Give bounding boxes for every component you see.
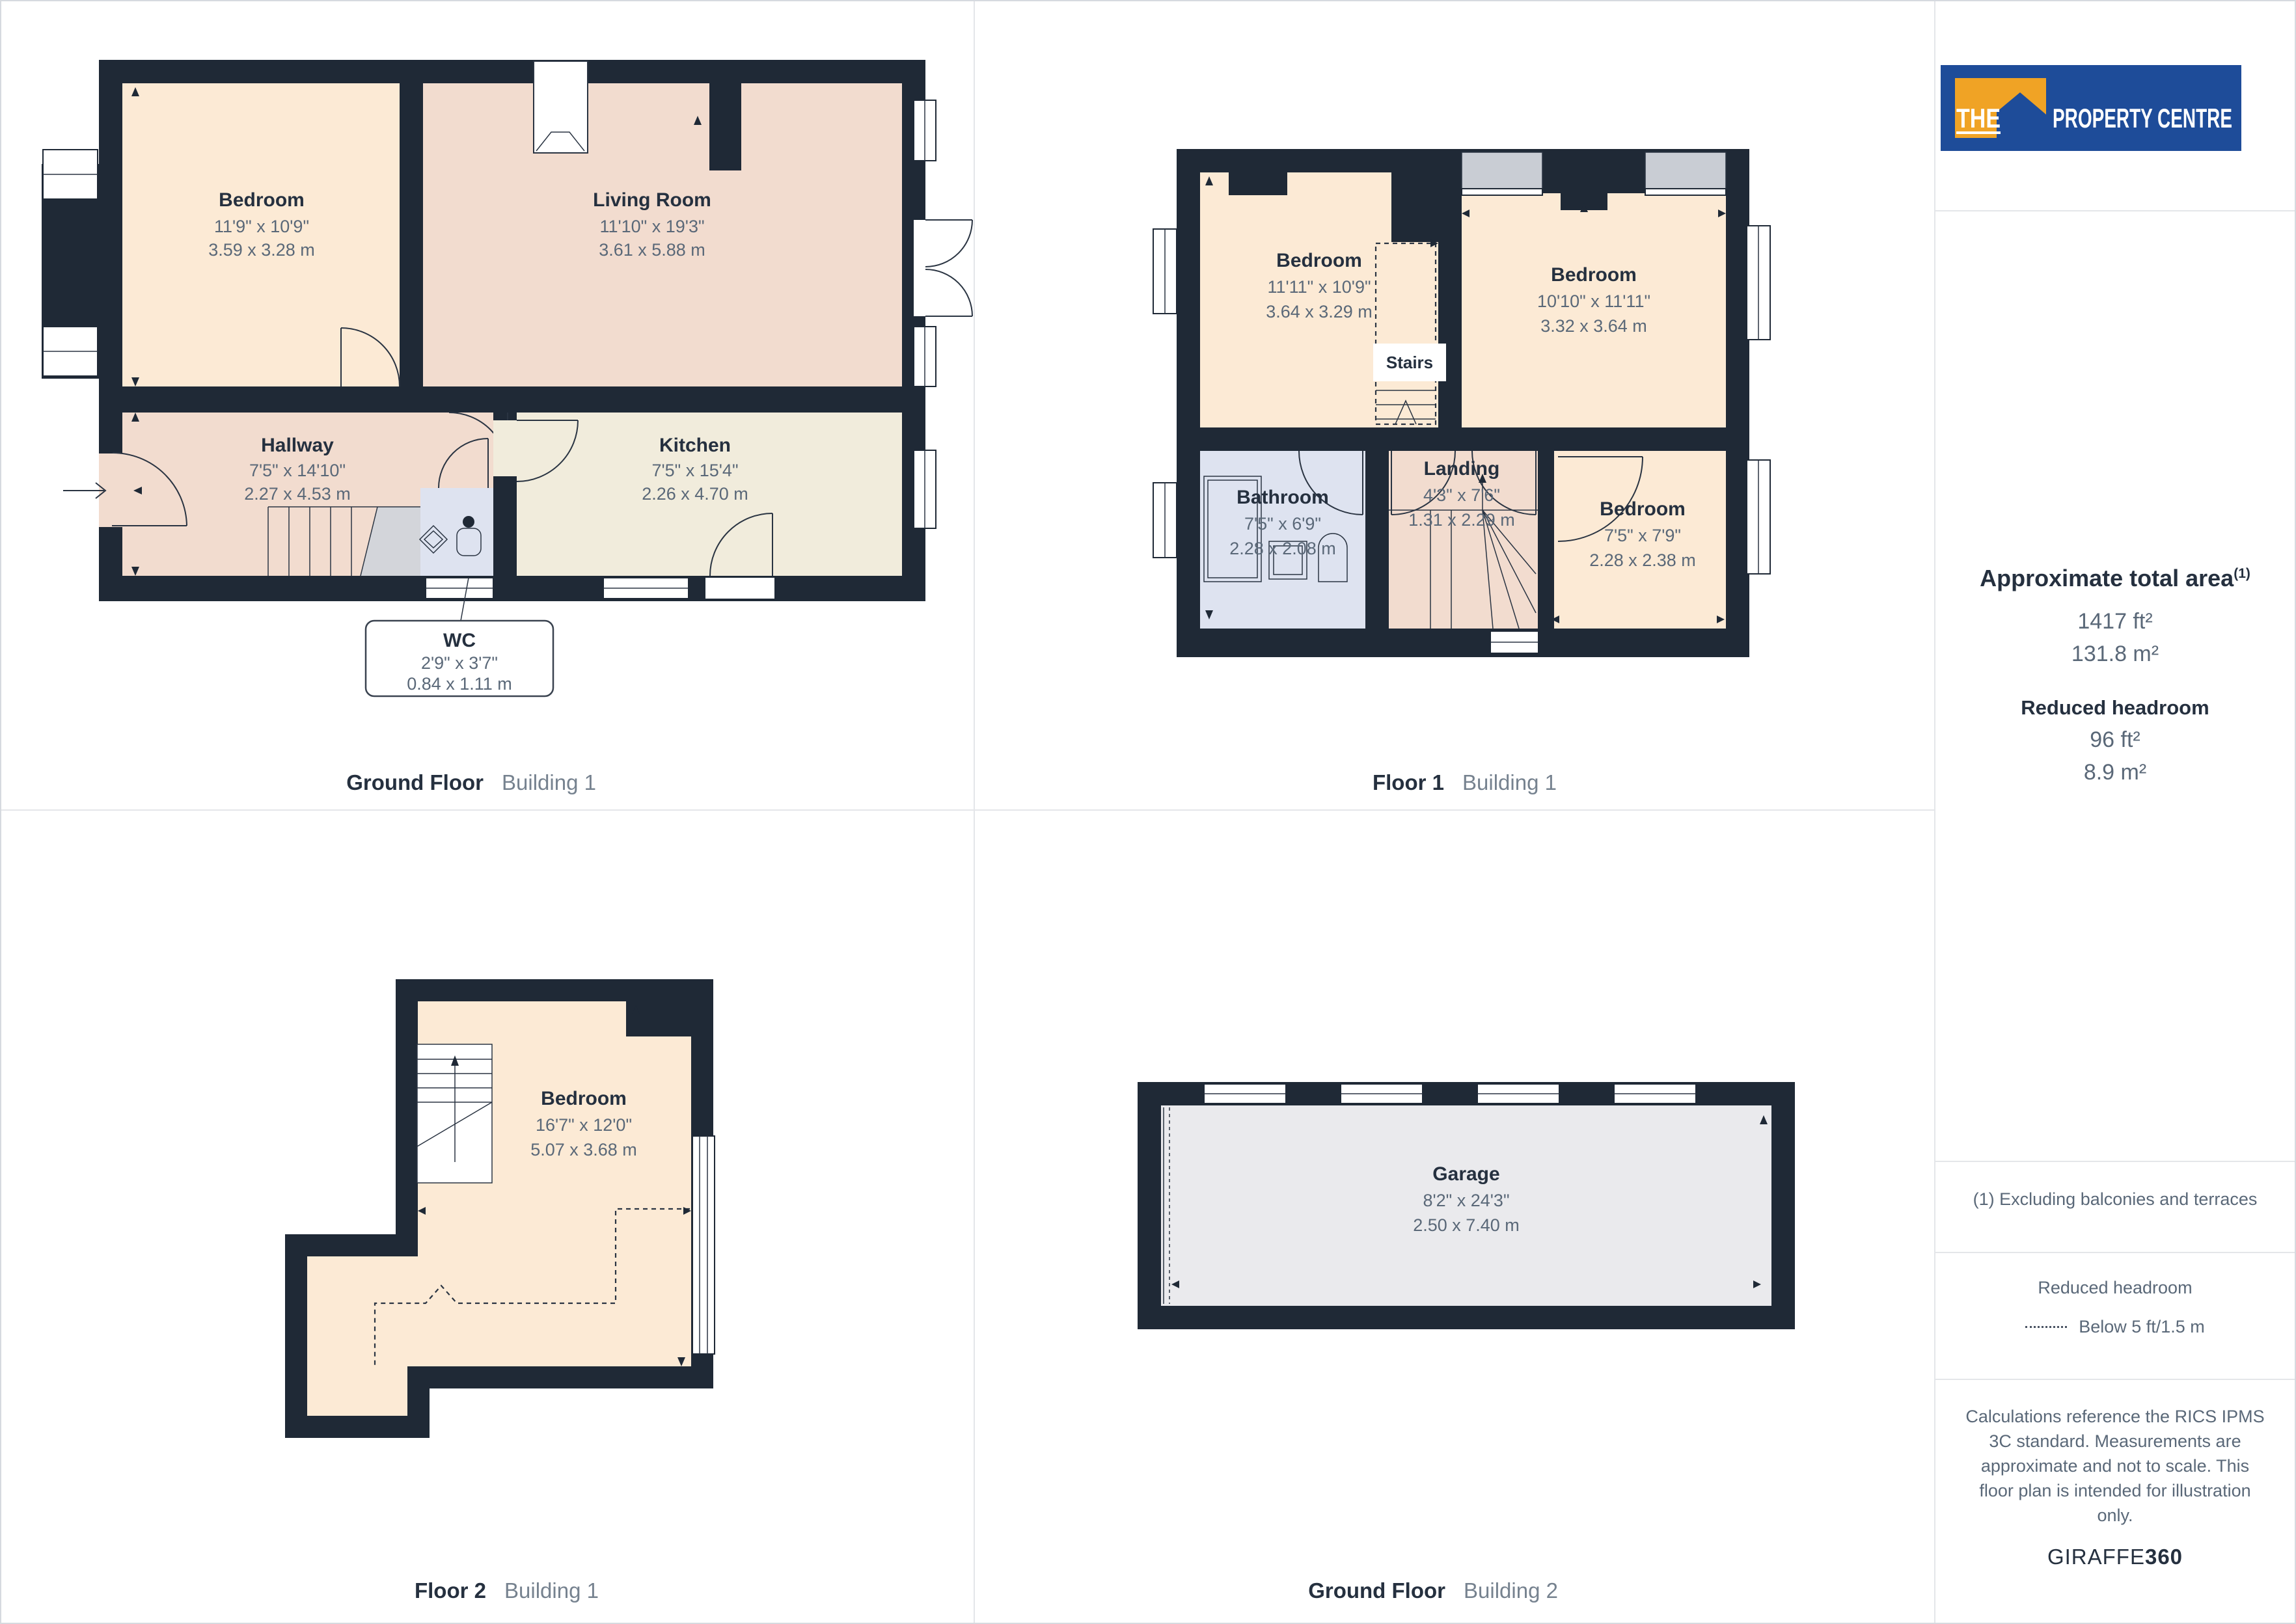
svg-text:8'2" x 24'3": 8'2" x 24'3" [1423, 1191, 1509, 1210]
label-living: Living Room 11'10" x 19'3" 3.61 x 5.88 m [593, 189, 711, 260]
svg-text:2.26 x 4.70 m: 2.26 x 4.70 m [642, 484, 748, 504]
svg-text:5.07 x 3.68 m: 5.07 x 3.68 m [530, 1140, 637, 1159]
caption-ground-floor-b2: Ground Floor Building 2 [1308, 1578, 1558, 1603]
dotted-line-sample [2025, 1326, 2067, 1328]
plan-floor1-building1: Stairs [975, 1, 1934, 809]
area-footnote: (1) Excluding balconies and terraces [1935, 1189, 2295, 1210]
svg-text:16'7" x 12'0": 16'7" x 12'0" [536, 1115, 632, 1135]
total-area-imperial: 1417 ft² [1935, 609, 2295, 634]
property-centre-logo: THE PROPERTY CENTRE [1941, 65, 2241, 151]
caption-ground-floor-b1: Ground Floor Building 1 [346, 770, 596, 794]
window-right-top [1747, 226, 1770, 340]
svg-text:Bedroom: Bedroom [541, 1088, 627, 1109]
window-left-bottom [43, 327, 98, 376]
wall-column [1391, 149, 1438, 242]
svg-text:Hallway: Hallway [261, 435, 334, 456]
floorplan-sheet: Bedroom 11'9" x 10'9" 3.59 x 3.28 m Livi… [0, 0, 2296, 1624]
info-sidebar: THE PROPERTY CENTRE Approximate total ar… [1935, 1, 2295, 1623]
svg-text:11'11" x 10'9": 11'11" x 10'9" [1267, 277, 1371, 297]
window-sill-left [1462, 152, 1542, 195]
disclaimer-line: Calculations reference the RICS IPMS [1935, 1407, 2295, 1427]
wall-notch [1229, 172, 1287, 195]
plan-floor2-building1: Bedroom 16'7" x 12'0" 5.07 x 3.68 m Floo… [1, 811, 974, 1623]
stairs [417, 1044, 492, 1183]
legend-title: Reduced headroom [1935, 1278, 2295, 1298]
svg-text:0.84 x 1.11 m: 0.84 x 1.11 m [407, 674, 512, 694]
label-bedroom-tl: Bedroom 11'11" x 10'9" 3.64 x 3.29 m [1266, 250, 1373, 321]
room-wc [420, 488, 493, 576]
svg-text:Bedroom: Bedroom [1600, 498, 1686, 520]
svg-text:11'9" x 10'9": 11'9" x 10'9" [214, 217, 309, 236]
giraffe360-brand: GIRAFFE360 [1935, 1545, 2295, 1569]
sidebar-divider [1935, 1161, 2295, 1162]
svg-text:3.59 x 3.28 m: 3.59 x 3.28 m [208, 240, 315, 260]
svg-text:THE: THE [1956, 103, 2001, 133]
svg-text:Ground Floor: Ground Floor [1308, 1578, 1445, 1603]
sidebar-divider [1935, 1379, 2295, 1380]
total-area-title: Approximate total area(1) [1935, 565, 2295, 592]
svg-text:3.61 x 5.88 m: 3.61 x 5.88 m [599, 240, 705, 260]
french-doors [914, 220, 972, 316]
sidebar-divider [1935, 210, 2295, 211]
svg-text:2.27 x 4.53 m: 2.27 x 4.53 m [244, 484, 351, 504]
total-area-metric: 131.8 m² [1935, 642, 2295, 667]
svg-text:Kitchen: Kitchen [659, 435, 731, 456]
svg-text:Building 1: Building 1 [502, 770, 596, 794]
label-bathroom: Bathroom 7'5" x 6'9" 2.28 x 2.08 m [1229, 487, 1336, 558]
window-right [692, 1136, 715, 1354]
disclaimer-line: floor plan is intended for illustration [1935, 1481, 2295, 1501]
label-landing: Landing 4'3" x 7'6" 1.31 x 2.29 m [1408, 458, 1515, 530]
svg-text:2'9" x 3'7": 2'9" x 3'7" [421, 653, 498, 673]
svg-text:2.28 x 2.08 m: 2.28 x 2.08 m [1229, 539, 1336, 558]
svg-text:Floor 2: Floor 2 [415, 1578, 486, 1603]
svg-text:Bedroom: Bedroom [1551, 264, 1637, 286]
svg-text:1.31 x 2.29 m: 1.31 x 2.29 m [1408, 510, 1515, 530]
window-bottom [1490, 631, 1538, 653]
svg-text:3.64 x 3.29 m: 3.64 x 3.29 m [1266, 302, 1373, 321]
svg-text:Stairs: Stairs [1386, 353, 1433, 372]
svg-text:3.32 x 3.64 m: 3.32 x 3.64 m [1540, 316, 1647, 336]
svg-text:7'5" x 14'10": 7'5" x 14'10" [249, 461, 346, 480]
caption-floor1-b1: Floor 1 Building 1 [1373, 770, 1557, 794]
window-right-bottom [1747, 460, 1770, 574]
disclaimer-line: approximate and not to scale. This [1935, 1456, 2295, 1476]
window-kitchen-right [914, 450, 936, 528]
svg-text:Ground Floor: Ground Floor [346, 770, 484, 794]
room-bedroom [307, 1001, 691, 1416]
plan-ground-floor-building1: Bedroom 11'9" x 10'9" 3.59 x 3.28 m Livi… [1, 1, 974, 809]
window-sill-right [1645, 152, 1726, 195]
svg-text:7'5" x 15'4": 7'5" x 15'4" [651, 461, 738, 480]
window-left-top [43, 150, 98, 199]
svg-text:Bedroom: Bedroom [1276, 250, 1362, 271]
window-living-right-bottom [914, 327, 936, 386]
svg-text:7'5" x 7'9": 7'5" x 7'9" [1604, 526, 1681, 545]
reduced-headroom-title: Reduced headroom [1935, 696, 2295, 720]
svg-text:WC: WC [443, 630, 476, 651]
svg-text:Living Room: Living Room [593, 189, 711, 211]
svg-text:Building 1: Building 1 [504, 1578, 599, 1603]
svg-text:Bedroom: Bedroom [219, 189, 305, 211]
wall-step [626, 979, 713, 1036]
svg-text:2.28 x 2.38 m: 2.28 x 2.38 m [1589, 550, 1696, 570]
label-bedroom-br: Bedroom 7'5" x 7'9" 2.28 x 2.38 m [1589, 498, 1696, 570]
window-left-bottom [1153, 483, 1177, 558]
svg-text:Garage: Garage [1432, 1163, 1499, 1185]
label-bedroom: Bedroom 11'9" x 10'9" 3.59 x 3.28 m [208, 189, 315, 260]
svg-text:4'3" x 7'6": 4'3" x 7'6" [1423, 485, 1500, 505]
svg-text:7'5" x 6'9": 7'5" x 6'9" [1244, 514, 1321, 534]
plan-ground-floor-building2: Garage 8'2" x 24'3" 2.50 x 7.40 m Ground… [975, 811, 1934, 1623]
disclaimer-line: 3C standard. Measurements are [1935, 1431, 2295, 1452]
window-kitchen-bottom [603, 578, 689, 599]
svg-text:Building 1: Building 1 [1462, 770, 1557, 794]
legend-row: Below 5 ft/1.5 m [1935, 1317, 2295, 1337]
svg-text:PROPERTY CENTRE: PROPERTY CENTRE [2053, 103, 2232, 133]
window-wc-bottom [426, 578, 493, 599]
sidebar-divider [1935, 1252, 2295, 1253]
disclaimer-line: only. [1935, 1506, 2295, 1526]
svg-text:2.50 x 7.40 m: 2.50 x 7.40 m [1413, 1215, 1520, 1235]
label-bedroom-tr: Bedroom 10'10" x 11'11" 3.32 x 3.64 m [1537, 264, 1650, 336]
svg-text:Building 2: Building 2 [1464, 1578, 1558, 1603]
svg-text:Floor 1: Floor 1 [1373, 770, 1444, 794]
window-living-right-top [914, 100, 936, 161]
label-bedroom: Bedroom 16'7" x 12'0" 5.07 x 3.68 m [530, 1088, 637, 1159]
caption-floor2-b1: Floor 2 Building 1 [415, 1578, 599, 1603]
svg-text:10'10" x 11'11": 10'10" x 11'11" [1537, 291, 1650, 311]
legend-label: Below 5 ft/1.5 m [2079, 1317, 2205, 1337]
svg-text:11'10" x 19'3": 11'10" x 19'3" [599, 217, 704, 236]
svg-text:Bathroom: Bathroom [1237, 487, 1329, 508]
footnote-marker: (1) [2234, 566, 2250, 581]
window-left-top [1153, 229, 1177, 314]
reduced-headroom-metric: 8.9 m² [1935, 760, 2295, 785]
svg-text:Landing: Landing [1424, 458, 1500, 480]
reduced-headroom-imperial: 96 ft² [1935, 727, 2295, 753]
